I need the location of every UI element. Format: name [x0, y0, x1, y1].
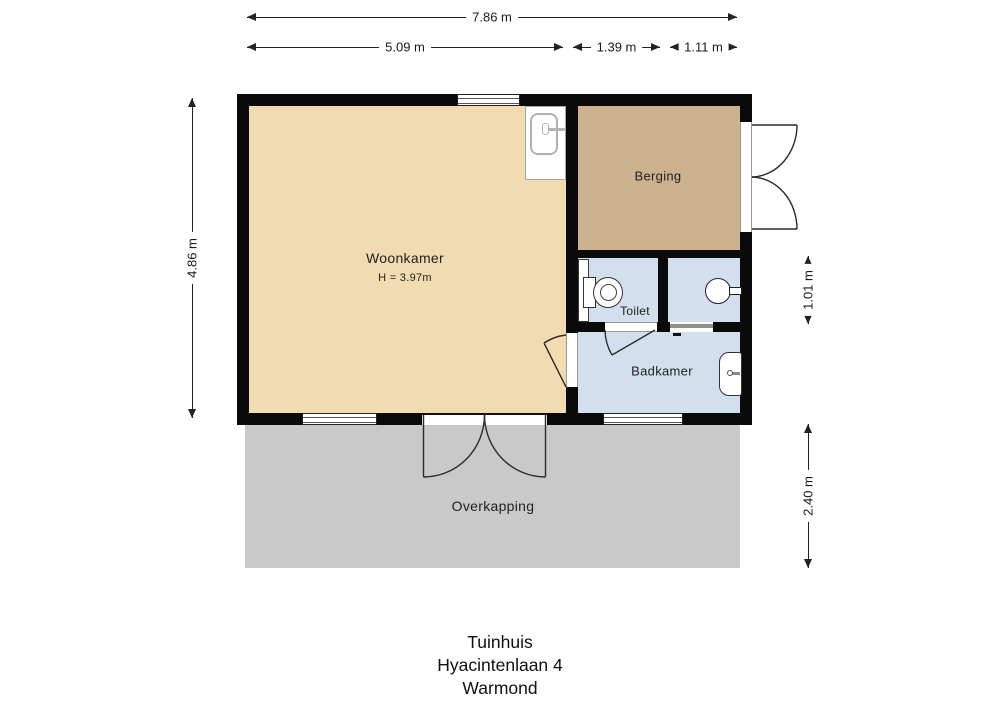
- dim-overkapping-depth-label: 2.40 m: [800, 470, 817, 522]
- window-badkamer-icon: [603, 413, 683, 425]
- wall-bottom-1: [237, 413, 302, 425]
- dim-toilet-row-height-label: 1.01 m: [800, 264, 817, 316]
- bathroom-basin-icon: [719, 352, 742, 396]
- overkapping-area: [245, 413, 740, 568]
- toilet-label: Toilet: [620, 304, 650, 318]
- dim-woonkamer-width-label: 5.09 m: [379, 39, 431, 56]
- sinkroom-opening: [670, 322, 713, 332]
- overkapping-label: Overkapping: [452, 498, 535, 514]
- dim-total-width-label: 7.86 m: [466, 9, 518, 26]
- berging-door-threshold: [740, 122, 752, 232]
- floorplan-page: { "plan": { "title_lines": ["Tuinhuis", …: [0, 0, 1000, 707]
- wall-toiletrow-3: [713, 322, 752, 332]
- wall-toiletrow-1: [566, 322, 605, 332]
- toilet-door-threshold: [605, 322, 657, 332]
- plan-title: Tuinhuis: [0, 631, 1000, 654]
- badkamer-door-threshold: [566, 333, 578, 387]
- window-bottom-left-icon: [302, 413, 377, 425]
- french-door-sill: [422, 413, 547, 415]
- wall-left: [237, 94, 249, 425]
- berging-label: Berging: [635, 169, 682, 184]
- plan-city: Warmond: [0, 677, 1000, 700]
- wall-center-vertical-1: [566, 94, 578, 333]
- woonkamer-height-note: H = 3.97m: [378, 272, 432, 284]
- woonkamer-label: Woonkamer: [366, 250, 444, 266]
- wall-center-vertical-2: [566, 387, 578, 425]
- plan-address: Hyacintenlaan 4: [0, 654, 1000, 677]
- wall-toiletrow-2: [657, 322, 670, 332]
- wall-bottom-2: [377, 413, 422, 425]
- kitchen-sink-icon: [525, 106, 566, 180]
- dim-sinkroom-width-label: 1.11 m: [678, 39, 729, 56]
- wall-right-1: [740, 94, 752, 122]
- washbasin-icon: [705, 278, 742, 304]
- badkamer-label: Badkamer: [631, 364, 693, 379]
- dim-berging-width-label: 1.39 m: [591, 39, 643, 56]
- dim-building-height-label: 4.86 m: [184, 232, 201, 284]
- berging-door-swing-bottom: [752, 177, 797, 229]
- wall-berging-bottom: [566, 250, 752, 258]
- plan-title-block: Tuinhuis Hyacintenlaan 4 Warmond: [0, 631, 1000, 700]
- wall-toilet-divider: [658, 258, 668, 322]
- wall-stub-mark: [673, 333, 681, 336]
- berging-door-swing-top: [752, 125, 797, 177]
- toilet-icon: [583, 277, 625, 309]
- window-top-icon: [457, 94, 520, 106]
